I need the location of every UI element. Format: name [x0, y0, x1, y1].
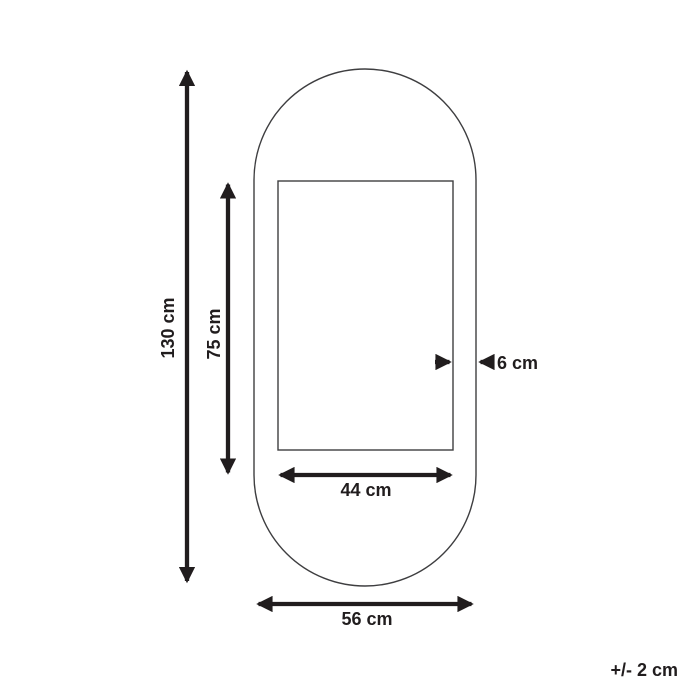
inner-width-label: 44 cm [340, 480, 391, 500]
overall-height-label: 130 cm [158, 297, 178, 358]
diagram-svg: 130 cm 75 cm 6 cm 44 cm 56 cm +/- 2 cm [0, 0, 700, 700]
dim-inner-width: 44 cm [281, 475, 451, 500]
dim-overall-width: 56 cm [259, 604, 472, 629]
dimension-diagram: 130 cm 75 cm 6 cm 44 cm 56 cm +/- 2 cm [0, 0, 700, 700]
inner-height-label: 75 cm [204, 308, 224, 359]
frame-depth-label: 6 cm [497, 353, 538, 373]
overall-width-label: 56 cm [341, 609, 392, 629]
dim-overall-height: 130 cm [158, 72, 187, 581]
mirror-outer-outline [254, 69, 476, 586]
mirror-inner-frame [278, 181, 453, 450]
dim-inner-height: 75 cm [204, 185, 228, 473]
dim-frame-depth: 6 cm [435, 353, 538, 373]
tolerance-note: +/- 2 cm [610, 660, 678, 680]
